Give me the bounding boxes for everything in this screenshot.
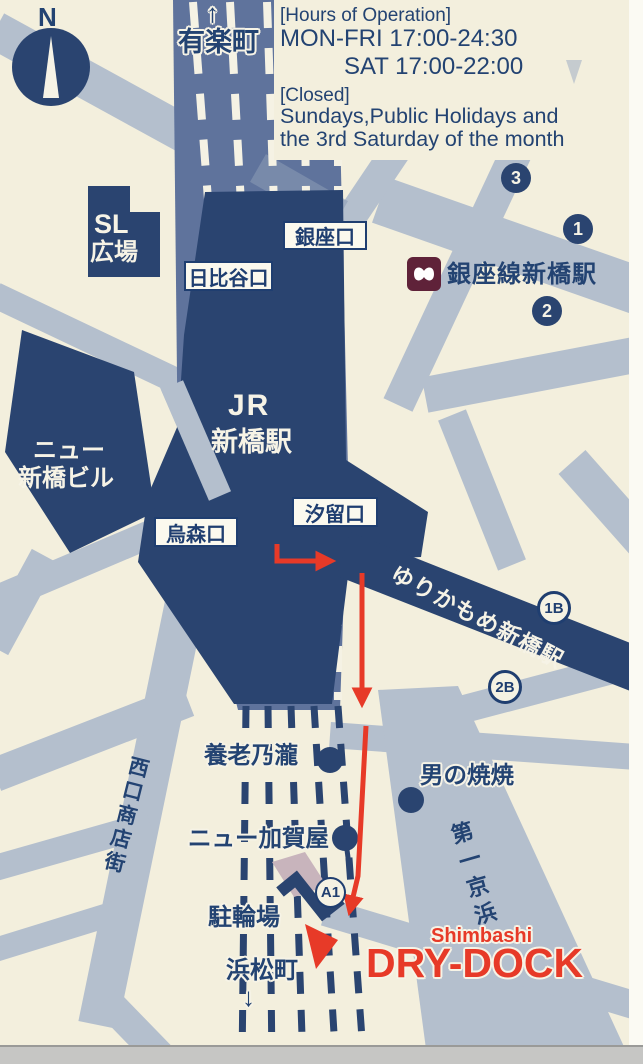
yoronotaki-dot xyxy=(317,747,343,773)
shiodome-exit-box: 汐留口 xyxy=(292,497,378,527)
hours-saturday: SAT 17:00-22:00 xyxy=(344,54,523,79)
exit-badge-2: 2 xyxy=(532,296,562,326)
hours-weekday: MON-FRI 17:00-24:30 xyxy=(280,26,517,51)
hamamatsucho-label: 浜松町 xyxy=(226,958,298,983)
access-map-card: N ↑ 有楽町 [Hours of Operation] MON-FRI 17:… xyxy=(0,0,643,1064)
metro-glyph-icon xyxy=(407,257,441,291)
ginza-exit-box: 銀座口 xyxy=(283,221,367,250)
new-kagaya-label: ニュー加賀屋 xyxy=(188,826,329,851)
scan-edge-bottom xyxy=(0,1047,643,1064)
scan-edge-right xyxy=(629,0,643,1064)
new-kagaya-dot xyxy=(332,825,358,851)
new-kagaya-dot-stem xyxy=(347,850,350,872)
venue-name-label: DRY-DOCK xyxy=(366,942,583,985)
ginza-line-station-label: 銀座線新橋駅 xyxy=(447,262,597,287)
yurakucho-label: 有楽町 xyxy=(178,28,259,56)
exit-badge-a1: A1 xyxy=(315,877,346,908)
jr-label: JR xyxy=(228,390,270,422)
hamamatsucho-direction-arrow: ↓ xyxy=(242,984,255,1011)
jr-station-name: 新橋駅 xyxy=(211,428,292,456)
metro-icon xyxy=(407,257,441,291)
otoko-yakiyaki-dot xyxy=(398,787,424,813)
compass-needle-icon xyxy=(12,28,90,106)
new-shimbashi-building-label-line1: ニュー xyxy=(33,438,105,463)
sl-plaza-label-line2: 広場 xyxy=(90,240,138,265)
exit-badge-1b: 1B xyxy=(537,591,571,625)
scan-edge-line xyxy=(0,1045,643,1047)
yurakucho-direction-arrow: ↑ xyxy=(206,0,219,27)
closed-line2: the 3rd Saturday of the month xyxy=(280,128,564,151)
closed-header: [Closed] xyxy=(280,86,350,106)
closed-line1: Sundays,Public Holidays and xyxy=(280,105,558,128)
hours-header: [Hours of Operation] xyxy=(280,6,451,26)
new-shimbashi-building-label-line2: 新橋ビル xyxy=(18,466,114,491)
exit-badge-1: 1 xyxy=(563,214,593,244)
compass-icon xyxy=(12,28,90,106)
hibiya-exit-box: 日比谷口 xyxy=(184,261,273,291)
otoko-yakiyaki-label: 男の焼焼 xyxy=(420,763,514,788)
exit-badge-3: 3 xyxy=(501,163,531,193)
compass-north-label: N xyxy=(38,4,57,31)
sl-plaza-label-line1: SL xyxy=(94,210,129,238)
bicycle-parking-label: 駐輪場 xyxy=(208,905,280,930)
exit-badge-2b: 2B xyxy=(488,670,522,704)
yoronotaki-label: 養老乃瀧 xyxy=(204,743,298,768)
karasumori-exit-box: 烏森口 xyxy=(154,517,238,547)
